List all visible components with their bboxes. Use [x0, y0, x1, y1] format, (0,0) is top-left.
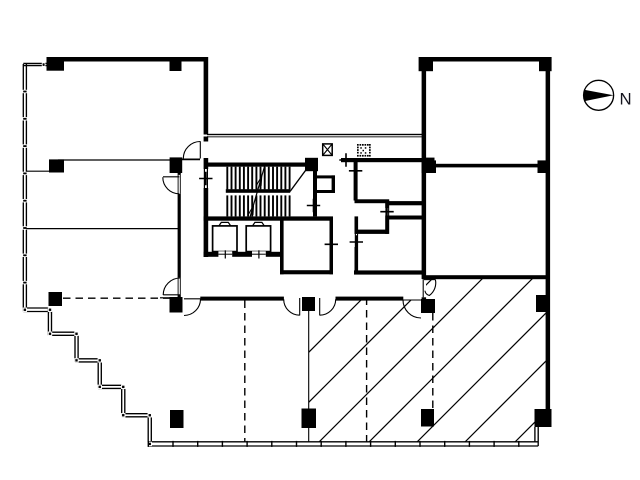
svg-text:N: N: [620, 90, 632, 109]
